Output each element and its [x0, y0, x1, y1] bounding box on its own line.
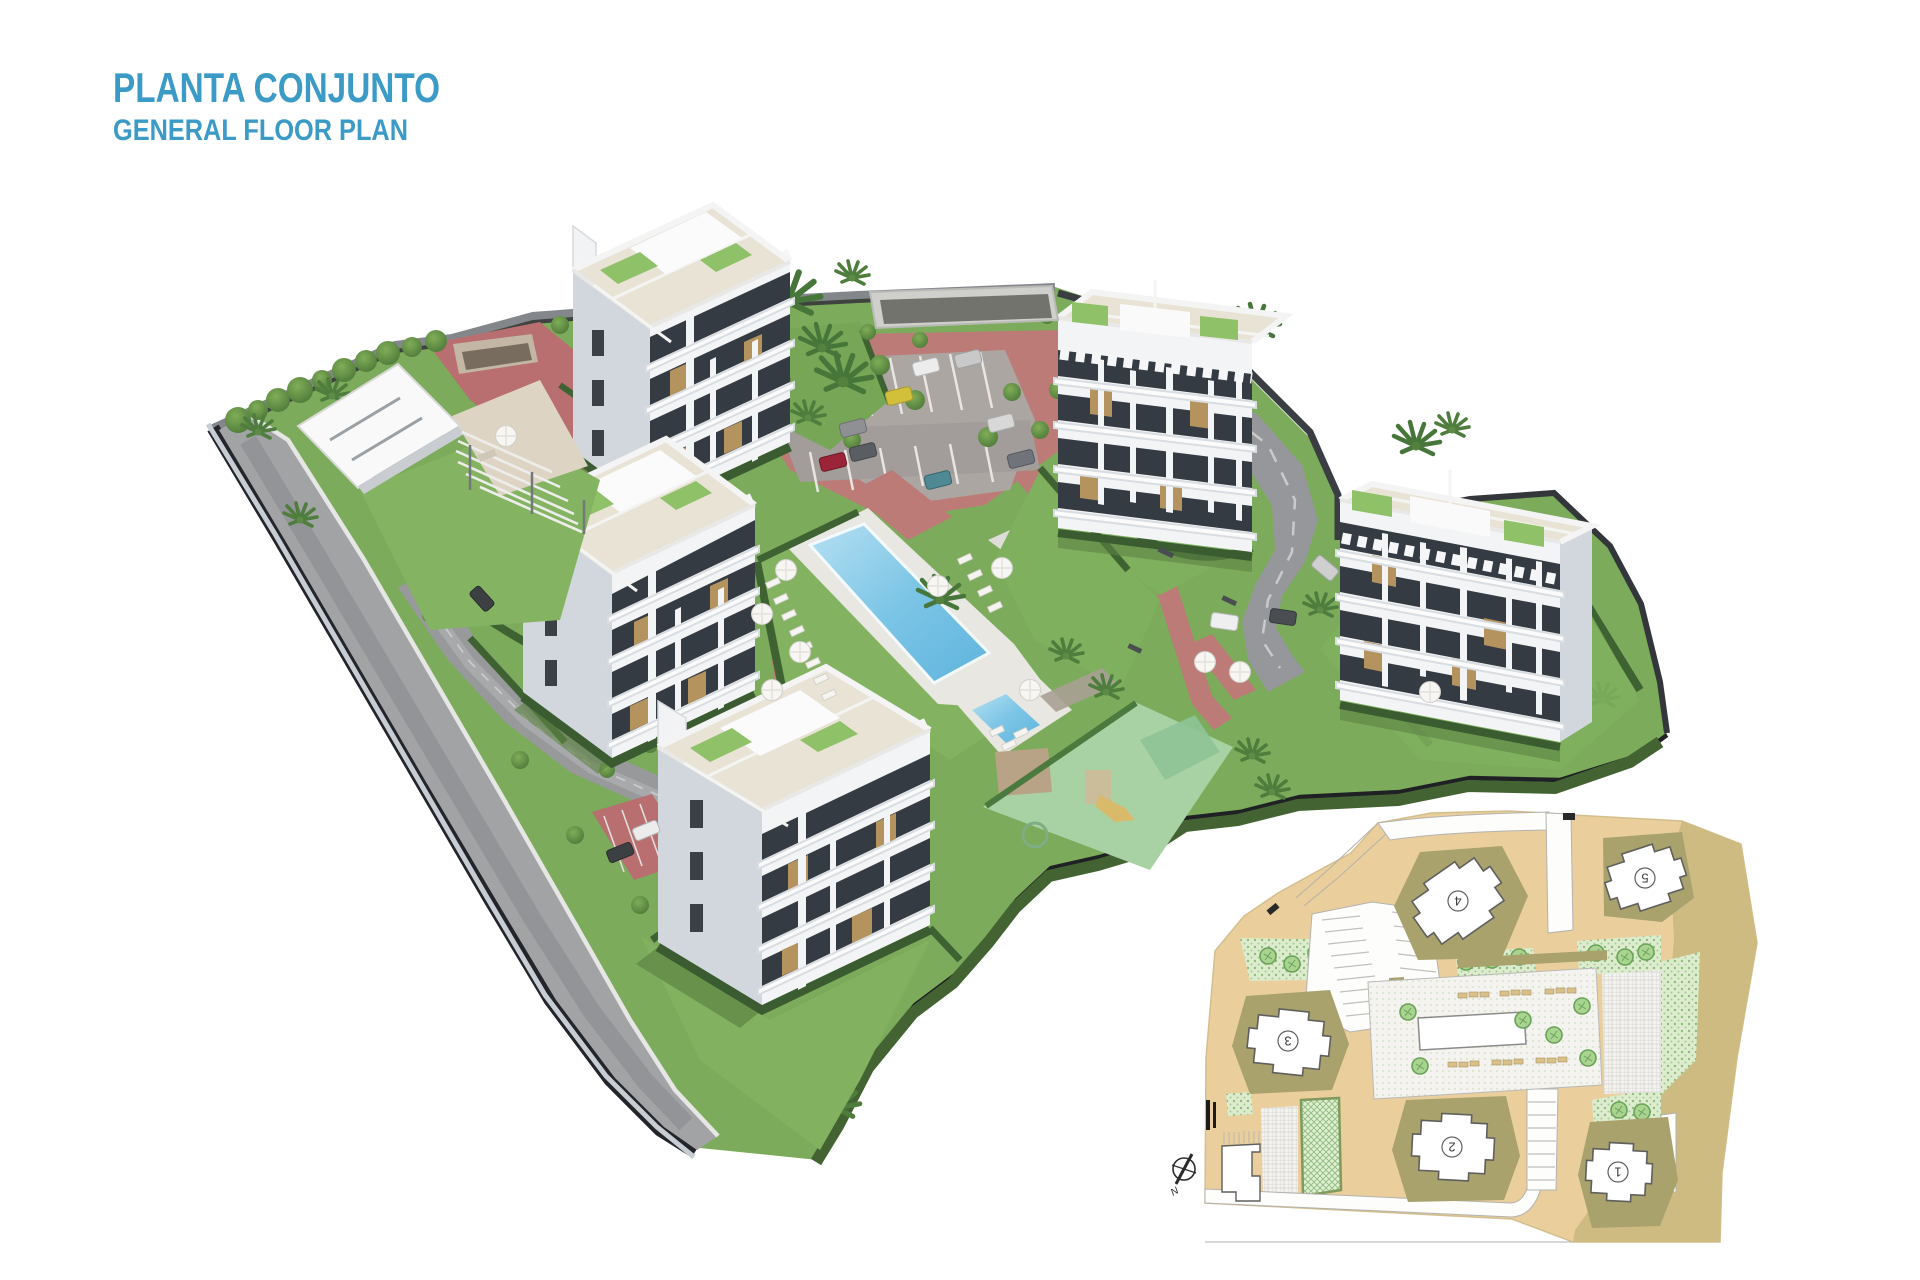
svg-text:GENERAL FLOOR PLAN: GENERAL FLOOR PLAN — [113, 114, 408, 147]
svg-text:PLANTA CONJUNTO: PLANTA CONJUNTO — [113, 64, 440, 111]
svg-text:2: 2 — [1448, 1140, 1455, 1155]
svg-text:3: 3 — [1284, 1034, 1291, 1049]
svg-text:5: 5 — [1641, 871, 1648, 886]
svg-text:4: 4 — [1454, 894, 1461, 909]
svg-text:1: 1 — [1614, 1165, 1621, 1180]
